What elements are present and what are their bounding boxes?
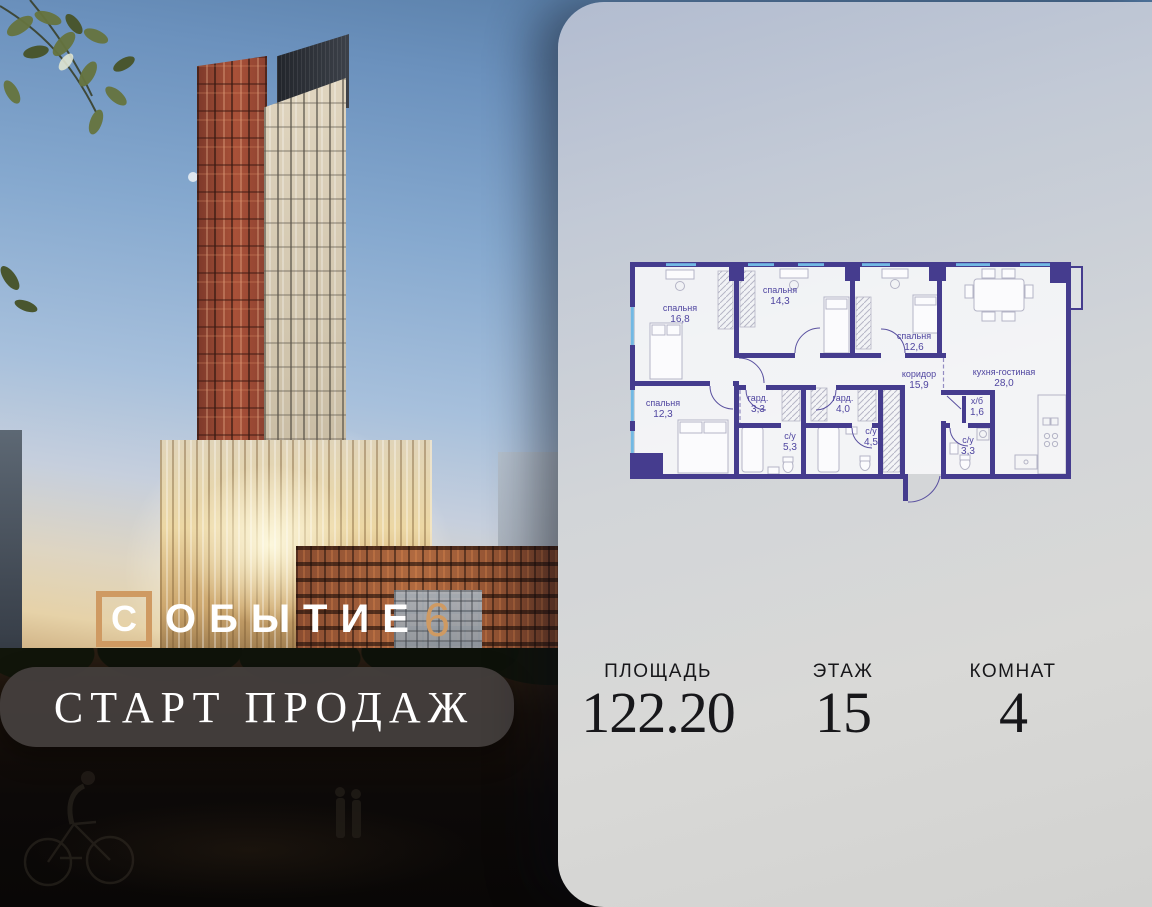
room-label: х/б1,6 (970, 396, 984, 420)
room-label: кухня-гостиная28,0 (973, 367, 1035, 391)
pedestrians-silhouette (335, 787, 361, 838)
stat-area: ПЛОЩАДЬ 122.20 (558, 661, 758, 743)
room-label: гард.4,0 (833, 393, 854, 417)
tree-leaves (0, 0, 240, 360)
room-label: спальня16,8 (663, 303, 697, 327)
room-label: спальня12,3 (646, 398, 680, 422)
logo-wordmark: ОБЫТИЕ (165, 599, 422, 639)
logo-frame-icon: С (96, 591, 152, 647)
stat-area-value: 122.20 (558, 683, 758, 743)
room-label: спальня14,3 (763, 285, 797, 309)
plan-balcony (1071, 267, 1082, 309)
logo-first-letter: С (111, 601, 137, 637)
street-figures (0, 740, 420, 900)
sales-start-text: СТАРТ ПРОДАЖ (40, 682, 474, 733)
info-panel: спальня16,8 спальня14,3 спальня12,6 кухн… (558, 2, 1152, 907)
promo-card: С ОБЫТИЕ 6 СТАРТ ПРОДАЖ (0, 0, 1152, 907)
brand-logo: С ОБЫТИЕ 6 (96, 589, 450, 649)
stat-rooms: КОМНАТ 4 (913, 661, 1113, 743)
room-label: с/у3,3 (961, 435, 975, 459)
cyclist-silhouette (25, 771, 133, 885)
stat-rooms-value: 4 (913, 683, 1113, 743)
room-label: с/у4,5 (864, 426, 878, 450)
logo-number: 6 (424, 596, 450, 643)
room-label: спальня12,6 (897, 331, 931, 355)
floor-plan: спальня16,8 спальня14,3 спальня12,6 кухн… (630, 255, 1090, 511)
room-label: гард.3,3 (748, 393, 769, 417)
room-label: коридор15,9 (902, 369, 936, 393)
sales-start-banner: СТАРТ ПРОДАЖ (0, 667, 514, 747)
room-label: с/у5,3 (783, 431, 797, 455)
